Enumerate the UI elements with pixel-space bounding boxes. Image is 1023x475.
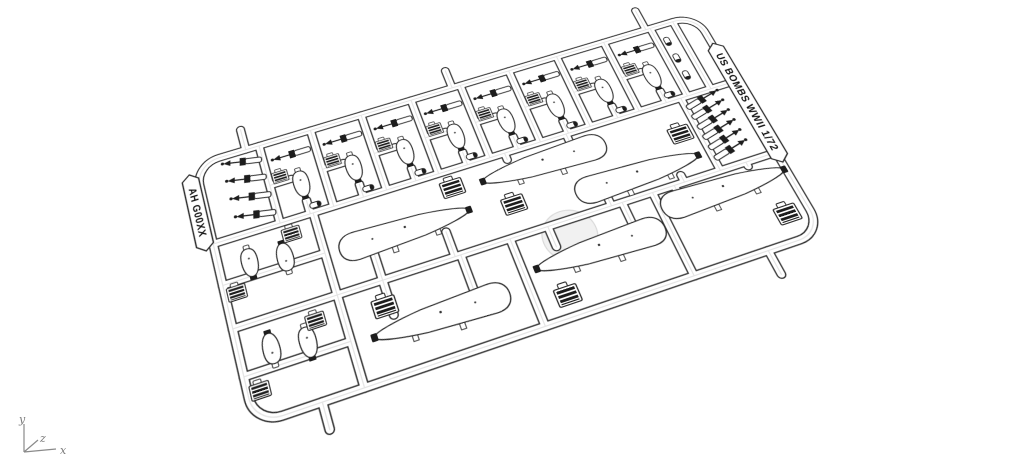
small-dart-bomb[interactable] [234, 208, 276, 221]
nose-fuze-part[interactable] [663, 37, 673, 46]
medium-bomb[interactable] [342, 150, 367, 185]
tail-fin-box[interactable] [771, 199, 803, 225]
small-dart-bomb[interactable] [423, 99, 463, 117]
small-dart-bomb[interactable] [569, 56, 608, 73]
small-dart-bomb[interactable] [229, 190, 271, 203]
axis-y-label: y [18, 413, 26, 426]
small-dart-bomb[interactable] [322, 130, 363, 149]
nose-fuze-part[interactable] [681, 70, 691, 80]
small-dart-bomb[interactable] [616, 42, 655, 59]
nose-fuze-part[interactable] [672, 53, 682, 63]
tail-fin-box[interactable] [499, 190, 528, 216]
medium-bomb[interactable] [443, 119, 469, 153]
medium-bomb[interactable] [590, 75, 618, 107]
small-dart-bomb[interactable] [270, 145, 312, 164]
sprue-model[interactable]: AH G00XX US BOMBS WWII 1/72 [195, 15, 823, 425]
medium-bomb[interactable] [290, 166, 314, 202]
medium-bomb[interactable] [393, 135, 418, 169]
cad-viewport: AH G00XX US BOMBS WWII 1/72 y z x [0, 0, 1023, 475]
tail-fin-box[interactable] [665, 120, 694, 144]
small-dart-bomb[interactable] [372, 114, 413, 132]
medium-bomb[interactable] [638, 60, 666, 92]
small-dart-bomb[interactable] [521, 70, 561, 88]
tail-fin-box[interactable] [304, 307, 327, 330]
axis-z-label: z [39, 432, 46, 445]
tail-fin-box[interactable] [438, 174, 466, 199]
sprue-plane: AH G00XX US BOMBS WWII 1/72 [195, 15, 823, 425]
axis-x-label: x [60, 444, 67, 457]
small-dart-bomb[interactable] [472, 85, 512, 103]
axis-triad: y z x [8, 412, 88, 472]
medium-bomb[interactable] [493, 104, 520, 137]
small-dart-bomb[interactable] [225, 173, 266, 186]
tail-fin-box[interactable] [551, 279, 582, 308]
tail-fin-box[interactable] [248, 376, 272, 401]
medium-bomb[interactable] [542, 89, 569, 122]
